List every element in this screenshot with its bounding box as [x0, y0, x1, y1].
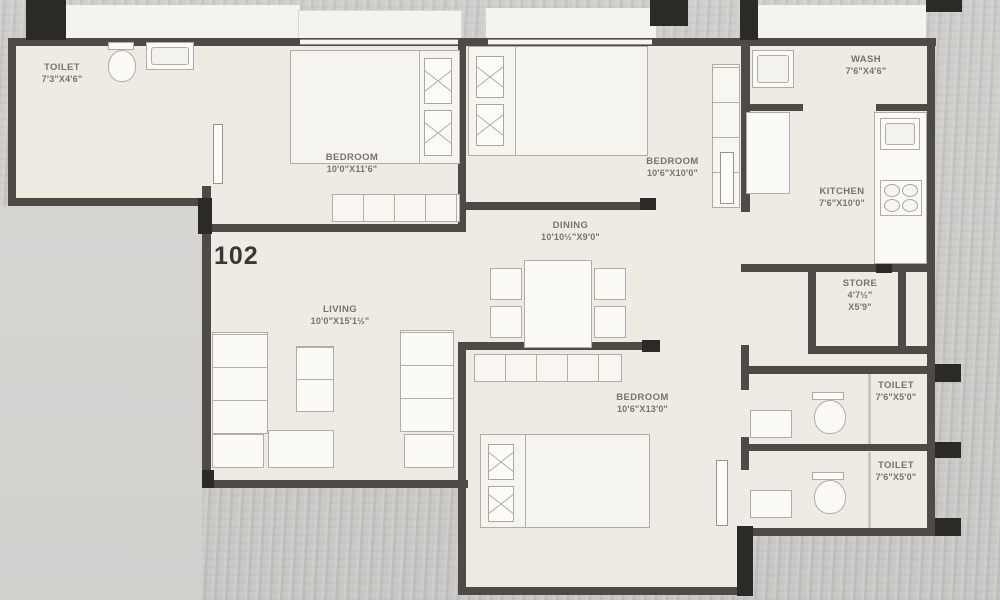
- window: [488, 39, 652, 45]
- room-name: LIVING: [264, 304, 416, 316]
- column: [740, 0, 758, 40]
- toilet-cistern: [108, 42, 134, 50]
- toilet-cistern: [812, 472, 844, 480]
- room-name: BEDROOM: [560, 392, 725, 404]
- column: [935, 442, 961, 458]
- ottoman: [268, 430, 334, 468]
- room-label-toilet-top-left: TOILET 7'3"X4'6": [12, 62, 112, 86]
- door-leaf: [213, 124, 223, 184]
- ottoman: [404, 434, 454, 468]
- column: [198, 198, 212, 234]
- room-name: TOILET: [860, 460, 932, 472]
- room-dims: 7'6"X5'0": [860, 472, 932, 484]
- toilet-wc-icon: [814, 400, 846, 434]
- bed-line: [525, 435, 526, 527]
- wall-segment: [741, 104, 803, 111]
- wardrobe: [474, 354, 622, 382]
- dining-chair: [490, 306, 522, 338]
- room-label-wash: WASH 7'6"X4'6": [810, 54, 922, 78]
- wall-segment: [458, 587, 750, 595]
- room-name: BEDROOM: [605, 156, 740, 168]
- column: [737, 526, 753, 596]
- room-label-toilet-right-bottom: TOILET 7'6"X5'0": [860, 460, 932, 484]
- toilet-sink: [750, 490, 792, 518]
- dining-chair: [594, 268, 626, 300]
- door-leaf: [716, 460, 728, 526]
- room-name: TOILET: [12, 62, 112, 74]
- room-dims: 10'6"X13'0": [560, 404, 725, 416]
- column: [26, 0, 66, 40]
- wall-segment: [458, 345, 466, 595]
- column: [640, 198, 656, 210]
- pillow-icon: [476, 104, 504, 146]
- room-label-dining: DINING 10'10½"X9'0": [498, 220, 643, 244]
- room-name: WASH: [810, 54, 922, 66]
- balcony-projection: [486, 8, 656, 38]
- room-dims: 7'6"X10'0": [786, 198, 898, 210]
- room-name: DINING: [498, 220, 643, 232]
- room-label-kitchen: KITCHEN 7'6"X10'0": [786, 186, 898, 210]
- unit-number: 102: [214, 242, 259, 271]
- column: [935, 518, 961, 536]
- pillow-icon: [424, 58, 452, 104]
- room-dims: 10'0"X15'1½": [264, 316, 416, 328]
- window: [300, 39, 458, 45]
- room-name: TOILET: [860, 380, 932, 392]
- toilet-wc-icon: [108, 50, 136, 82]
- wall-segment: [204, 480, 468, 488]
- coffee-table: [296, 346, 334, 412]
- pillow-icon: [476, 56, 504, 98]
- bed-line: [515, 47, 516, 155]
- wall-segment: [741, 528, 935, 536]
- wall-segment: [748, 366, 935, 374]
- room-dims: 10'0"X11'6": [262, 164, 442, 176]
- wall-segment: [462, 202, 654, 210]
- dining-chair: [490, 268, 522, 300]
- room-name: STORE: [822, 278, 898, 290]
- dining-chair: [594, 306, 626, 338]
- room-dims: 7'6"X4'6": [810, 66, 922, 78]
- washbasin-counter: [146, 42, 194, 70]
- bed-line: [419, 51, 420, 163]
- room-dims: 10'6"X10'0": [605, 168, 740, 180]
- wall-segment: [741, 437, 749, 470]
- wall-segment: [898, 272, 906, 350]
- room-dims: 4'7½": [822, 290, 898, 302]
- room-label-bedroom-2: BEDROOM 10'6"X10'0": [605, 156, 740, 180]
- room-label-living: LIVING 10'0"X15'1½": [264, 304, 416, 328]
- pillow-icon: [488, 486, 514, 522]
- sofa: [212, 332, 268, 434]
- wall-segment: [8, 198, 208, 206]
- wall-segment: [808, 346, 935, 354]
- room-label-store: STORE 4'7½" X5'9": [822, 278, 898, 314]
- room-dims: 7'3"X4'6": [12, 74, 112, 86]
- wash-sink: [752, 50, 794, 88]
- room-name: KITCHEN: [786, 186, 898, 198]
- wall-segment: [748, 444, 935, 451]
- room-dims: 10'10½"X9'0": [498, 232, 643, 244]
- dining-table: [524, 260, 592, 348]
- wall-segment: [202, 224, 466, 232]
- ottoman: [212, 434, 264, 468]
- column: [926, 0, 962, 12]
- kitchen-sink: [880, 118, 920, 150]
- balcony-projection: [298, 10, 462, 40]
- pillow-icon: [488, 444, 514, 480]
- toilet-cistern: [812, 392, 844, 400]
- room-dims: X5'9": [822, 302, 898, 314]
- column: [650, 0, 688, 26]
- room-label-bedroom-1: BEDROOM 10'0"X11'6": [262, 152, 442, 176]
- wardrobe: [332, 194, 460, 222]
- column: [935, 364, 961, 382]
- room-label-bedroom-3: BEDROOM 10'6"X13'0": [560, 392, 725, 416]
- wall-segment: [741, 264, 935, 272]
- wall-segment: [808, 272, 816, 354]
- sofa: [400, 330, 454, 432]
- pillow-icon: [424, 110, 452, 156]
- floor-plan: TOILET 7'3"X4'6" BEDROOM 10'0"X11'6" BED…: [0, 0, 1000, 600]
- kitchen-sink-basin-icon: [885, 123, 915, 145]
- room-label-toilet-right-top: TOILET 7'6"X5'0": [860, 380, 932, 404]
- washbasin-icon: [151, 47, 189, 65]
- column: [642, 340, 660, 352]
- room-dims: 7'6"X5'0": [860, 392, 932, 404]
- kitchen-platform: [746, 112, 790, 194]
- column: [202, 470, 214, 488]
- room-name: BEDROOM: [262, 152, 442, 164]
- wash-sink-basin-icon: [757, 55, 789, 83]
- balcony-projection: [64, 5, 300, 38]
- balcony-projection: [756, 5, 926, 38]
- toilet-sink: [750, 410, 792, 438]
- open-area: [0, 206, 202, 600]
- toilet-wc-icon: [814, 480, 846, 514]
